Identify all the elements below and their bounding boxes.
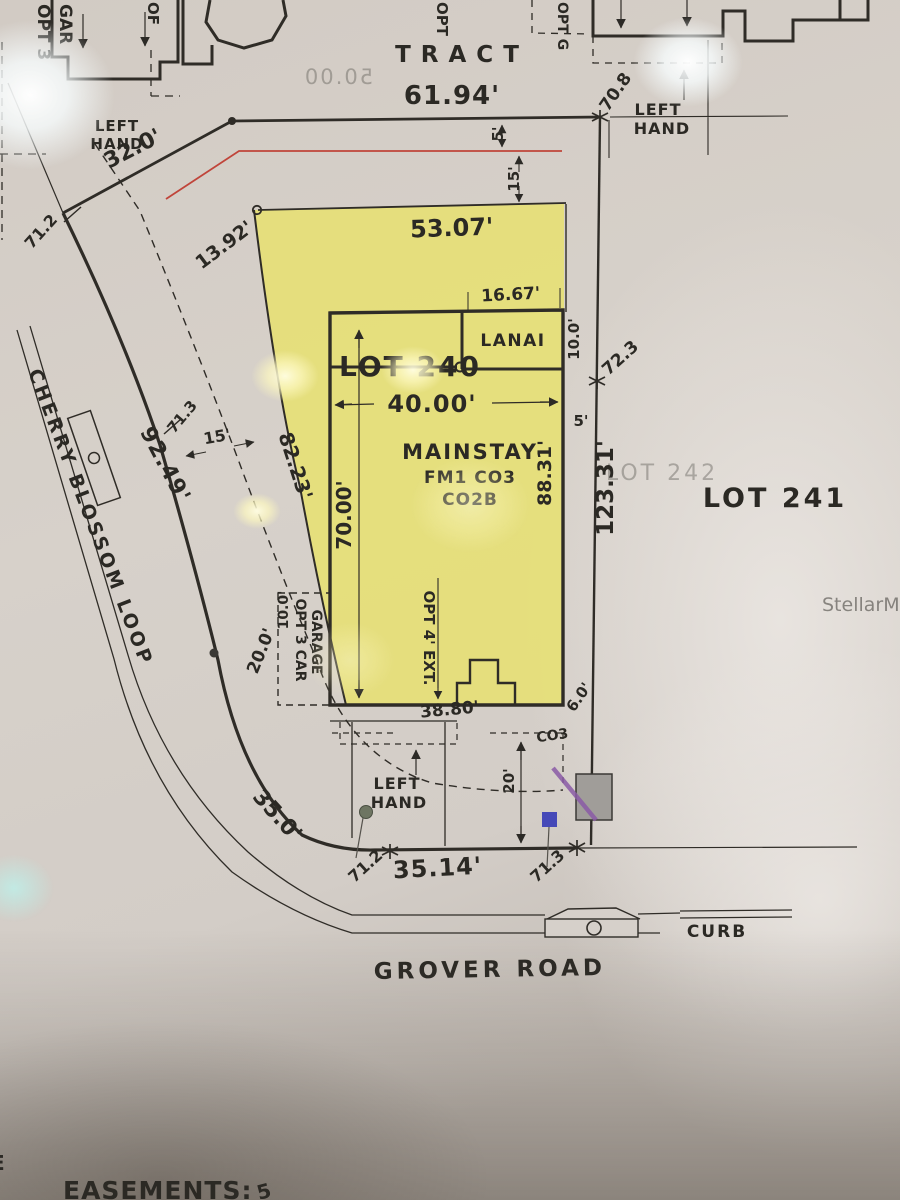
dim-1667: 16.67' [481,283,541,306]
dim-5-side: 5' [573,412,588,430]
lot241-label: LOT 241 [703,483,847,514]
easements-label: EASEMENTS: [63,1176,252,1200]
stellar-mls-watermark: StellarMLS [822,594,900,616]
dim-12331: 123.31' [593,440,619,536]
frag-of-mid: OF [144,2,162,25]
utility-pad [576,774,612,820]
dim-4000: 40.00' [387,390,476,418]
left-hand-s-2: HAND [371,793,427,812]
dim-20-drive: 20' [500,768,518,793]
left-hand-ne-2: HAND [634,119,690,138]
ghost-50-00: 50.00 [303,65,373,89]
opt-garage-label1: OPT 3 CAR [292,598,308,681]
left-hand-s-1: LEFT [374,774,421,793]
dim-3514: 35.14' [392,852,483,885]
left-edge-frag: E [0,1151,5,1175]
blue-square-marker [542,812,557,827]
dim-15-top: 15' [505,166,523,191]
dim-100-gar: 10.0' [276,591,292,630]
site-plan-svg: 50.00 LOT 242 [0,0,900,1200]
dim-7000: 70.00' [332,480,356,549]
frag-opt-center: OPT [433,2,451,37]
corner-dot-row [210,649,219,658]
tract-label: TRACT [395,42,529,68]
dim-100-side: 10.0' [565,318,583,360]
opt-ext-label: OPT 4' EXT. [420,591,438,686]
site-plan-photo: 50.00 LOT 242 [0,0,900,1200]
frag-optg-right: OPT G [554,2,570,50]
dim-8831: 88.31' [534,440,556,506]
ghost-lot-242: LOT 242 [606,461,718,486]
dim-5-top: 5' [489,126,507,141]
corner-dot-tract [228,117,236,125]
lanai-label: LANAI [480,331,545,351]
dim-6194: 61.94' [404,81,500,111]
dim-5307: 53.07' [410,213,494,244]
